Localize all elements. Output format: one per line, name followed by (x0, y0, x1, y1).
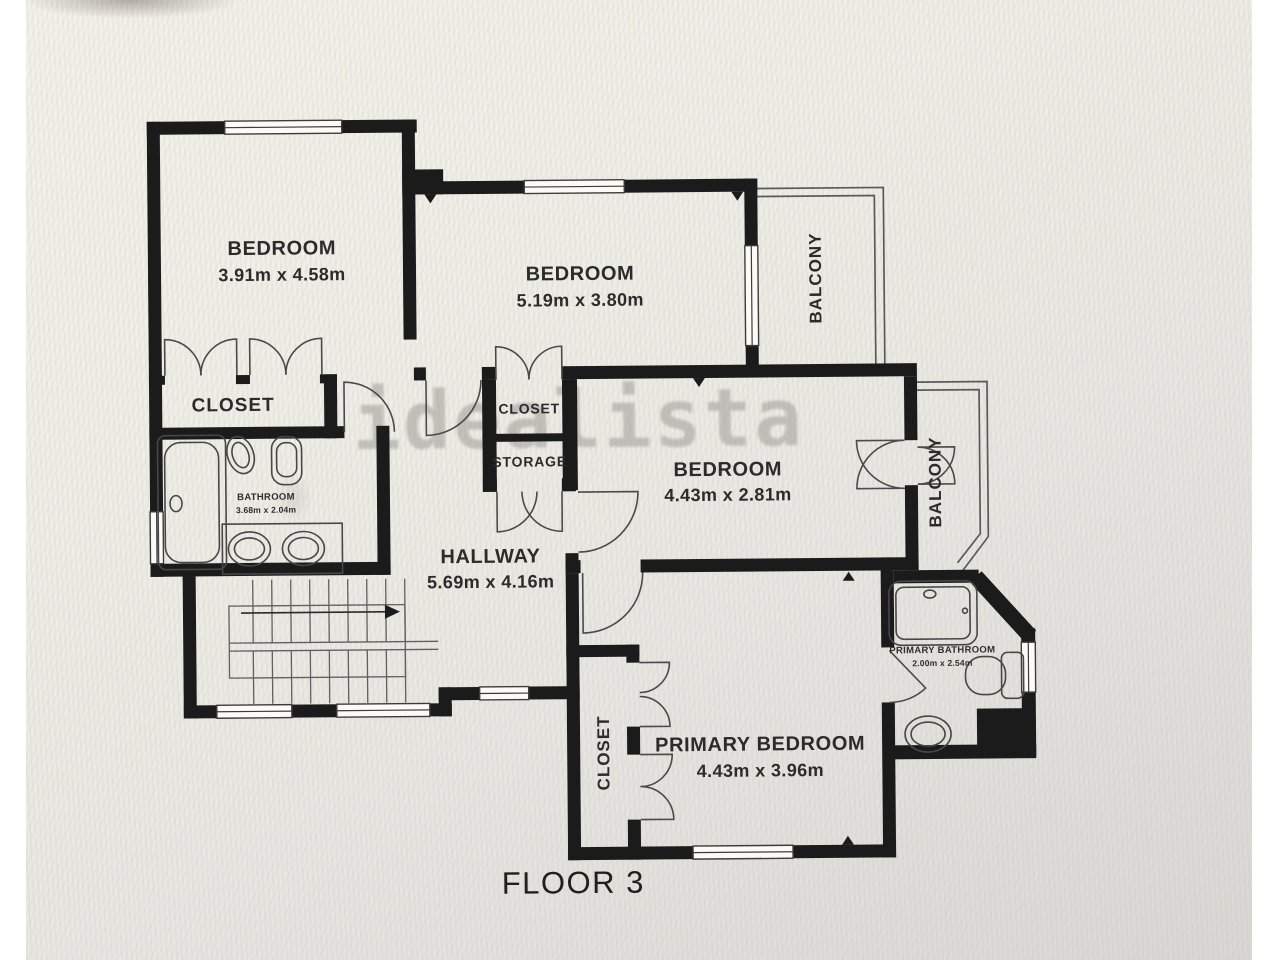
closet-center-label: CLOSET (498, 400, 560, 417)
primary-bathroom-name: PRIMARY BATHROOM (889, 644, 995, 656)
stairs (229, 578, 439, 704)
bathtub (157, 435, 226, 570)
storage-label: STORAGE (492, 453, 567, 470)
bedroom3-dims: 4.43m x 2.81m (664, 484, 791, 505)
window-bedroom1-top (225, 120, 342, 134)
floorplan: idealista (147, 114, 1038, 904)
bedroom3-name: BEDROOM (673, 458, 782, 481)
hallway-name: HALLWAY (440, 545, 540, 568)
bedroom2-dims: 5.19m x 3.80m (517, 290, 644, 311)
window-bedroom2-top (524, 180, 624, 194)
screenshot: idealista (0, 0, 1280, 960)
floorplan-svg: idealista (0, 0, 1280, 960)
primary-bathroom-dims: 2.00m x 2.54m (912, 658, 973, 669)
stairs-direction-arrow (241, 605, 400, 620)
bedroom1-dims: 3.91m x 4.58m (218, 264, 345, 285)
bedroom2-name: BEDROOM (526, 263, 635, 286)
storage-doors (497, 491, 562, 532)
window-bathroom-left (150, 512, 163, 564)
toilet (222, 433, 259, 477)
closet-left-label: CLOSET (192, 395, 275, 417)
primary-sink (905, 716, 951, 752)
shower (889, 581, 978, 646)
window-primary-bedroom (693, 845, 793, 859)
floor-caption: FLOOR 3 (502, 865, 645, 901)
closet-left-bifold-doors (165, 338, 322, 375)
closet-primary-label: CLOSET (594, 715, 614, 790)
primary-bedroom-door (583, 573, 644, 634)
balcony-top-label: BALCONY (806, 232, 826, 323)
primary-bedroom-dims: 4.43m x 3.96m (697, 760, 824, 781)
watermark-text: idealista (352, 371, 804, 468)
window-stairs-2 (337, 703, 430, 717)
window-hallway (480, 687, 529, 700)
primary-toilet (965, 652, 1023, 699)
bidet (271, 437, 301, 485)
window-bedroom2-balcony (745, 246, 759, 346)
hallway-dims: 5.69m x 4.16m (427, 571, 554, 592)
bedroom1-name: BEDROOM (227, 237, 336, 260)
bathroom-fixtures (157, 432, 342, 575)
window-stairs-1 (217, 705, 292, 719)
balcony-right-label: BALCONY (925, 436, 945, 527)
primary-bedroom-name: PRIMARY BEDROOM (655, 733, 865, 757)
bedroom3-door (578, 492, 639, 553)
bathroom-dims: 3.68m x 2.04m (236, 505, 297, 516)
bathroom-name: BATHROOM (237, 492, 295, 504)
